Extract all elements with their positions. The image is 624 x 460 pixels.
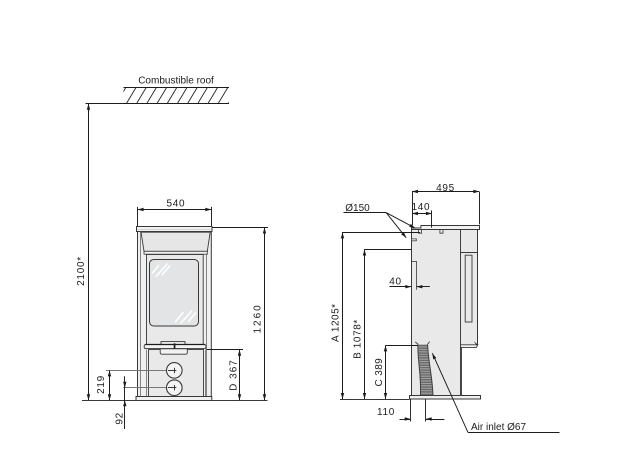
svg-text:92: 92 xyxy=(114,412,125,425)
svg-text:C 389: C 389 xyxy=(374,358,385,387)
svg-text:40: 40 xyxy=(389,276,402,287)
svg-text:219: 219 xyxy=(96,375,107,394)
svg-text:Air inlet Ø67: Air inlet Ø67 xyxy=(471,422,526,433)
svg-text:B 1078*: B 1078* xyxy=(353,319,364,359)
svg-text:495: 495 xyxy=(436,183,455,194)
svg-text:A 1205*: A 1205* xyxy=(331,303,342,342)
svg-text:D 367: D 367 xyxy=(228,359,239,391)
svg-text:1260: 1260 xyxy=(252,303,263,333)
svg-text:Combustible roof: Combustible roof xyxy=(138,76,214,87)
svg-text:2100*: 2100* xyxy=(76,256,87,286)
svg-text:540: 540 xyxy=(167,199,186,210)
svg-text:110: 110 xyxy=(377,407,395,418)
svg-text:140: 140 xyxy=(412,202,431,213)
